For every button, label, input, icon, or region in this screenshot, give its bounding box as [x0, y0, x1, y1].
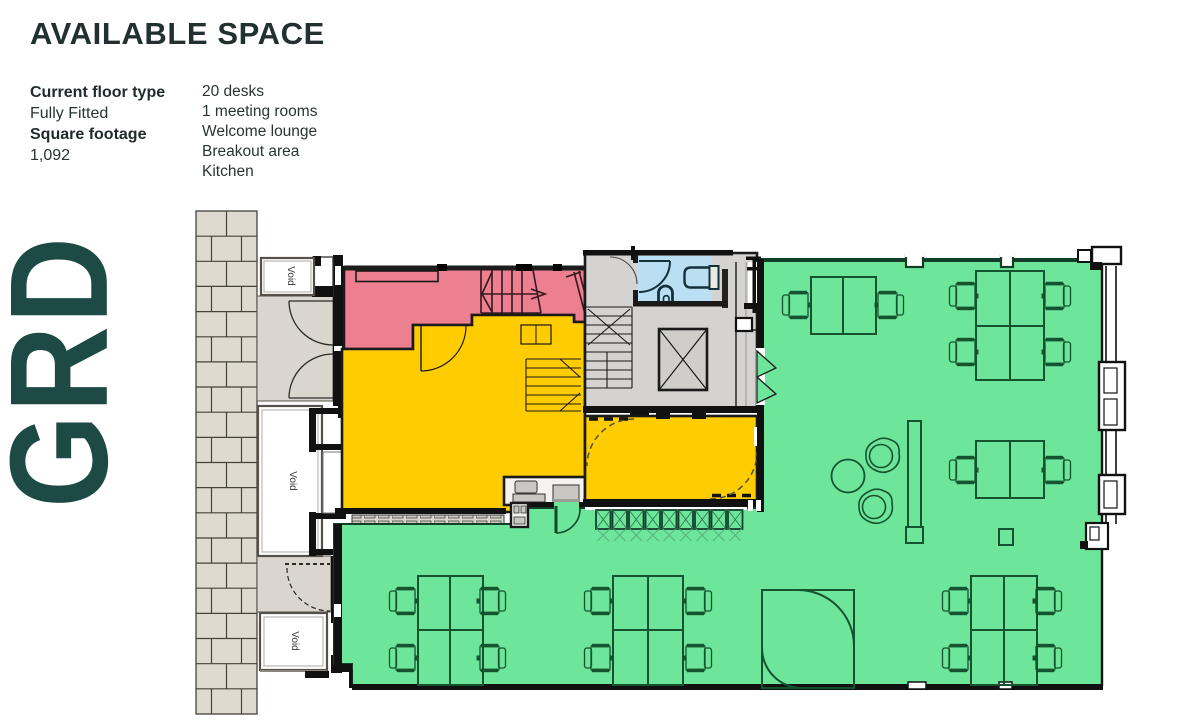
svg-text:Void: Void: [289, 631, 300, 650]
svg-text:Void: Void: [287, 471, 298, 490]
svg-text:Void: Void: [285, 266, 296, 285]
